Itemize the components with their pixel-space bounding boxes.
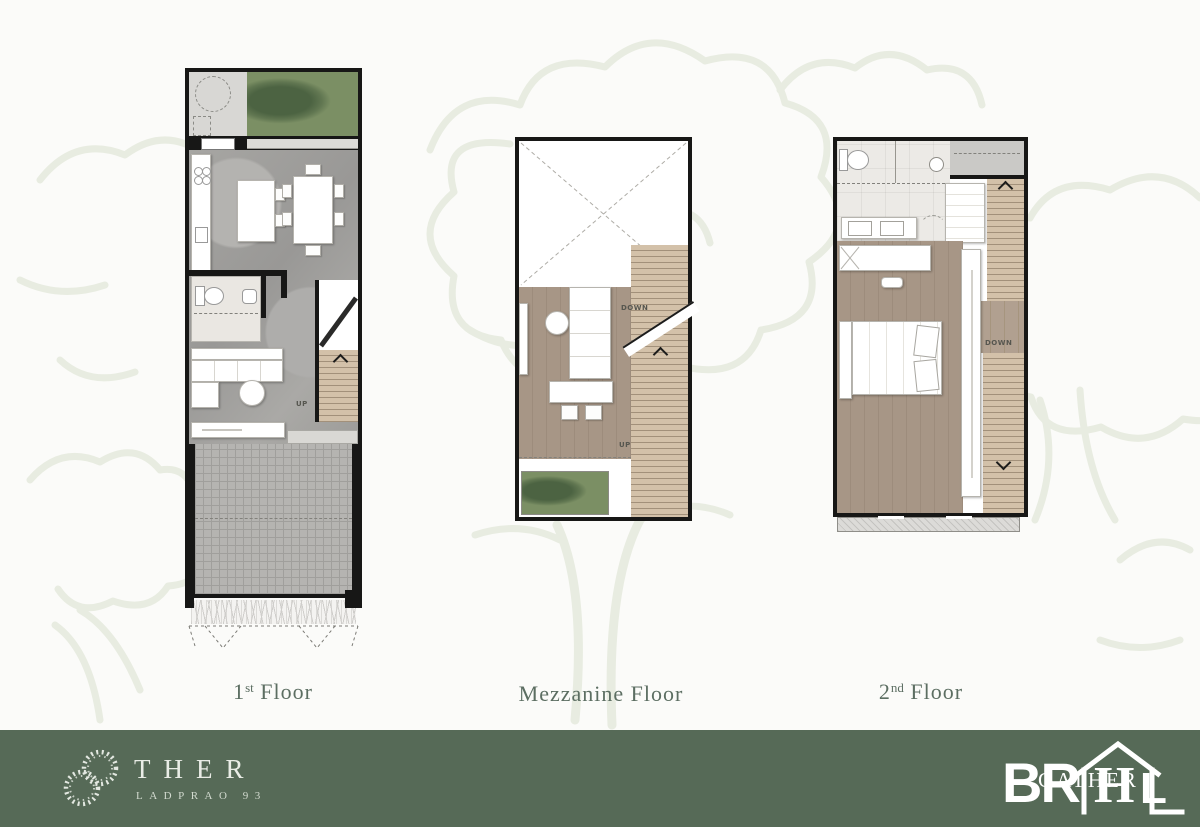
- dining-chair: [334, 212, 344, 226]
- stair-down-label: DOWN: [621, 304, 648, 312]
- stair-direction-arrow: [333, 354, 349, 370]
- plan-first-floor: UP: [185, 68, 362, 650]
- kitchen-sink: [195, 227, 208, 243]
- side-table: [545, 311, 569, 335]
- service-ledge: [950, 141, 1024, 175]
- bed: [852, 321, 942, 395]
- stair-direction-arrow: [996, 455, 1012, 471]
- bathroom-wall: [261, 276, 266, 318]
- parking-centerline: [195, 518, 352, 519]
- second-floor-walls: UP DOWN: [833, 137, 1028, 517]
- dining-chair: [305, 164, 321, 175]
- staircase: [631, 245, 688, 517]
- desk-chair: [585, 405, 602, 420]
- dining-chair: [334, 184, 344, 198]
- floorplan-page: UP: [0, 0, 1200, 827]
- desk: [549, 381, 613, 403]
- vanity-sink: [848, 221, 872, 236]
- coffee-table: [239, 380, 265, 406]
- wardrobe-line: [971, 270, 973, 478]
- logo-letter-l: L: [1140, 764, 1167, 814]
- plan-mezzanine-floor: DOWN UP: [515, 137, 692, 521]
- sofa: [569, 287, 611, 379]
- stair-down-label: DOWN: [985, 339, 1012, 347]
- footer-bar: THER LADPRAO 93 BR H L GATHER: [0, 730, 1200, 827]
- folding-gate: [187, 624, 360, 652]
- garden-concrete-pad: [189, 72, 247, 136]
- stair-direction-arrow: [653, 347, 669, 363]
- wall-tv: [881, 277, 903, 288]
- toilet-bowl: [847, 150, 869, 170]
- dining-table: [293, 176, 333, 244]
- parking-court: [195, 444, 352, 594]
- tv-console: [191, 422, 285, 438]
- desk-chair: [561, 405, 578, 420]
- brihl-logo: BR H L GATHER: [1002, 738, 1188, 820]
- sofa-back: [191, 348, 283, 360]
- plan-second-floor: UP DOWN: [833, 137, 1028, 533]
- bedside-cabinet: [839, 321, 852, 399]
- balcony-door-gap: [946, 516, 972, 519]
- bathroom: [191, 276, 261, 342]
- pillow: [913, 359, 939, 392]
- staircase-down: [983, 353, 1024, 513]
- stair-void: [315, 280, 358, 350]
- terrace-strip: [247, 139, 358, 149]
- tv-console-line: [202, 429, 242, 431]
- pillow: [913, 325, 940, 359]
- balcony-door-gap: [878, 516, 904, 519]
- floor-edge-dashed: [519, 457, 631, 458]
- entry-door: [201, 138, 235, 150]
- side-wall: [189, 444, 195, 594]
- toilet-bowl: [204, 287, 224, 305]
- side-wall: [352, 444, 358, 594]
- driveway-apron: [191, 600, 356, 624]
- shower-drain: [929, 157, 944, 172]
- stair-direction-arrow: [998, 181, 1014, 197]
- dining-chair: [282, 212, 292, 226]
- sofa-seat: [191, 360, 283, 382]
- door-swing-arc: [919, 215, 947, 243]
- gate-post: [185, 590, 194, 608]
- staircase: [315, 350, 358, 422]
- stove-burner: [202, 176, 211, 185]
- ledge-dashed: [954, 153, 1020, 154]
- dining-chair: [282, 184, 292, 198]
- label-first-floor: 1st Floor: [233, 679, 313, 705]
- staircase-up: [987, 179, 1024, 303]
- mezzanine-garden: [521, 471, 609, 515]
- wall-shelf: [519, 303, 528, 375]
- stair-up-label: UP: [619, 441, 631, 449]
- porch-step: [287, 430, 358, 444]
- stove-burner: [202, 167, 211, 176]
- stair-up-label: UP: [296, 400, 308, 408]
- brand-subtitle: LADPRAO 93: [136, 790, 267, 802]
- wet-dry-divider: [837, 183, 950, 184]
- dining-chair: [305, 245, 321, 256]
- mezzanine-walls: DOWN UP: [515, 137, 692, 521]
- planter-circle: [195, 76, 231, 112]
- brand-name: THER: [134, 754, 257, 785]
- kitchen-counter: [191, 154, 211, 274]
- interior-wall: [281, 270, 287, 298]
- first-floor-walls: UP: [185, 68, 362, 598]
- vanity-sink: [880, 221, 904, 236]
- planter-box: [193, 116, 211, 136]
- bedroom-cabinet-row: [839, 245, 931, 271]
- bathroom-divider: [194, 313, 258, 314]
- label-mezzanine-floor: Mezzanine Floor: [519, 681, 684, 707]
- wardrobe-column: [961, 249, 981, 497]
- vanity-counter: [841, 217, 917, 239]
- gate-post: [345, 590, 362, 608]
- closet-unit: [945, 183, 985, 243]
- garden-grass: [247, 72, 358, 136]
- sofa-chaise: [191, 382, 219, 408]
- bathroom-sink: [242, 289, 257, 304]
- label-second-floor: 2nd Floor: [879, 679, 963, 705]
- ther-rosette-logo: [60, 744, 124, 812]
- shower-partition: [895, 141, 896, 183]
- island-counter: [237, 180, 275, 242]
- balcony: [837, 517, 1020, 532]
- logo-overlay-gather: GATHER: [1038, 768, 1139, 793]
